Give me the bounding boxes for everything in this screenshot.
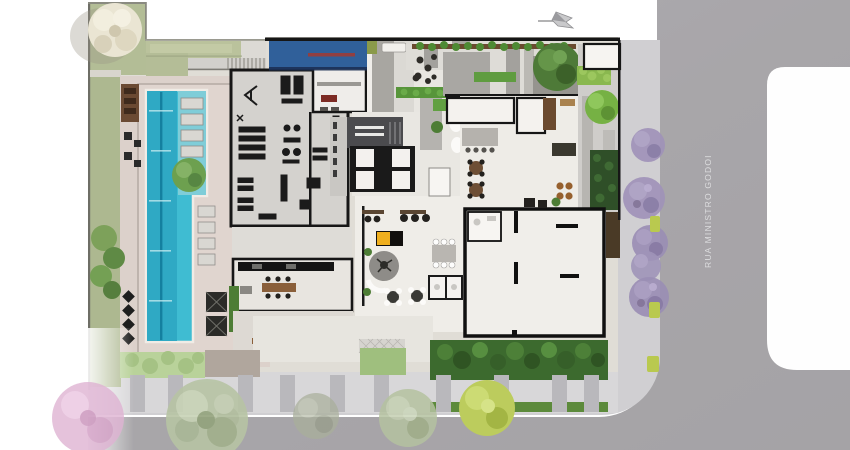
svg-text:RUA MINISTRO GODOI: RUA MINISTRO GODOI <box>703 154 713 268</box>
